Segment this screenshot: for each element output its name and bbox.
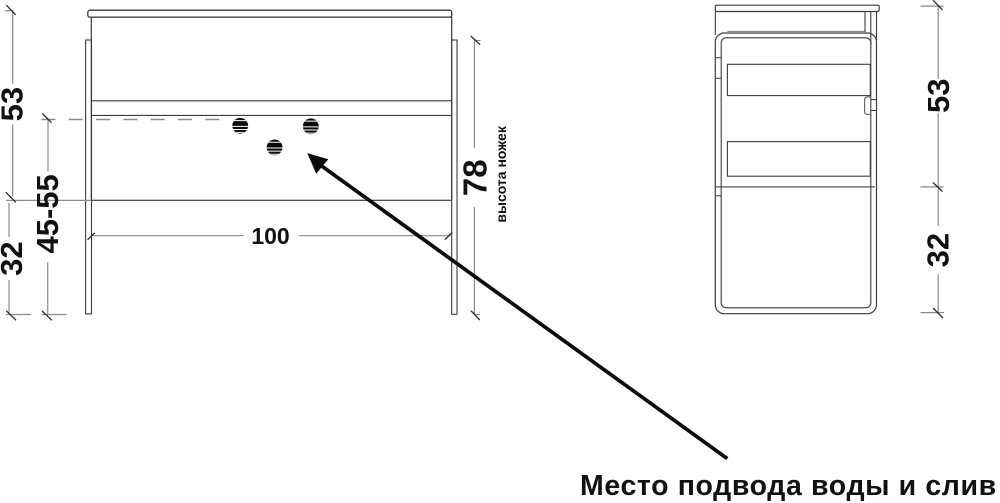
svg-text:53: 53 — [0, 87, 29, 121]
svg-text:53: 53 — [921, 79, 956, 113]
svg-text:высота ножек: высота ножек — [493, 125, 509, 222]
svg-text:32: 32 — [0, 241, 29, 275]
svg-text:Место подвода воды и слив: Место подвода воды и слив — [580, 470, 997, 502]
svg-text:45-55: 45-55 — [30, 174, 65, 253]
svg-text:100: 100 — [251, 223, 289, 249]
svg-text:78: 78 — [456, 159, 493, 196]
svg-text:32: 32 — [921, 233, 956, 267]
